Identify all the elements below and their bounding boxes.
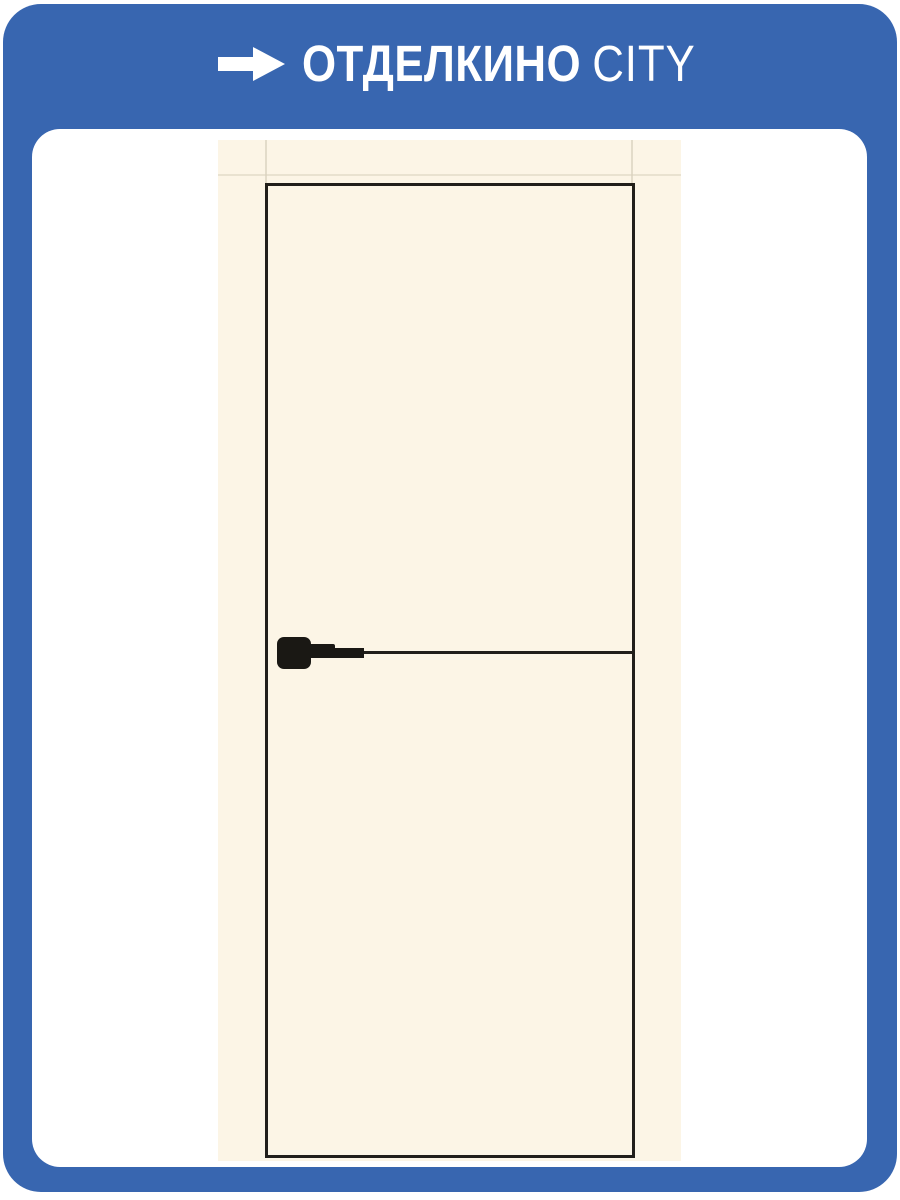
door-handle-lever-tip bbox=[330, 648, 364, 658]
door-frame-right-joint bbox=[631, 140, 633, 184]
brand-name-primary: ОТДЕЛКИНО bbox=[302, 44, 581, 84]
door-leaf bbox=[265, 183, 635, 1158]
door-frame-top-joint bbox=[218, 174, 681, 176]
product-card bbox=[32, 129, 867, 1167]
product-photo-door bbox=[218, 140, 681, 1161]
door-handle-lever bbox=[287, 644, 335, 658]
arrow-right-icon bbox=[218, 46, 286, 82]
brand-name: ОТДЕЛКИНО CITY bbox=[302, 44, 696, 84]
brand-logo: ОТДЕЛКИНО CITY bbox=[218, 44, 760, 84]
brand-name-secondary: CITY bbox=[592, 44, 695, 84]
door-frame-left-joint bbox=[265, 140, 267, 184]
door-molding-line bbox=[362, 651, 632, 654]
